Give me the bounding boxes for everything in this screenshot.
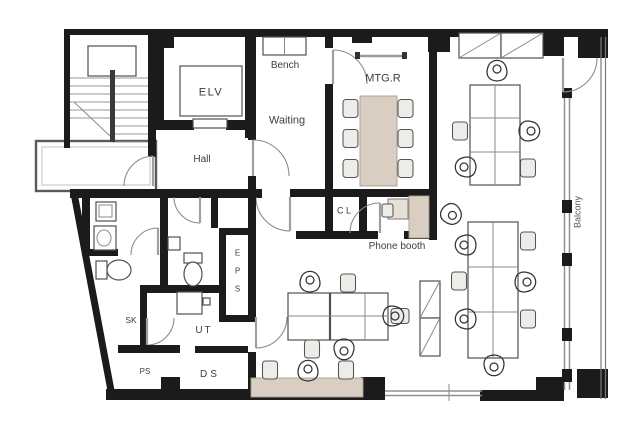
ut-door [147,318,174,345]
floor-plan: Bench Waiting MTG.R ELV Hall C L Phone b… [0,0,640,429]
desk-cluster-a [453,60,540,185]
balcony-door [563,58,597,92]
desk-cluster-c [288,271,409,359]
meeting-table [360,96,397,186]
toilet [96,260,131,280]
wc-door [131,228,158,255]
room-label-ds: DS [200,370,220,380]
sink [168,237,180,250]
washer [177,292,202,314]
wc-door [174,197,200,223]
wall-whiteboard [355,52,407,59]
waiting-bench [263,37,306,55]
room-label-waiting: Waiting [269,116,305,127]
room-label-balcony: Balcony [574,196,583,228]
room-label-sk: SK [125,316,136,325]
diagonal-wall [74,193,112,396]
room-label-elv: ELV [199,88,223,99]
desk-cluster-b [437,200,536,376]
room-label-ut: UT [195,326,212,336]
corridor-door [256,197,290,231]
entry-landing [36,141,156,191]
room-label-bench: Bench [271,61,299,71]
balcony-railing [601,37,606,399]
waiting-door [253,140,289,176]
toilet [184,253,202,286]
partition-screen [420,281,440,356]
window-counter [251,360,363,397]
room-label-eps: E P S [233,249,241,294]
balcony [562,37,606,399]
room-label-ps: PS [140,368,151,376]
room-label-mtg: MTG.R [365,74,400,85]
elevator-door-sill [193,119,227,128]
storage-cabinets [459,33,543,58]
room-label-cl: C L [337,207,351,216]
room-label-hall: Hall [193,155,210,165]
room-label-phone: Phone booth [369,242,426,252]
office-door [256,317,287,348]
utility-rooms [118,292,248,396]
floor-plan-drawing [0,0,640,429]
bottom-window [385,384,482,401]
